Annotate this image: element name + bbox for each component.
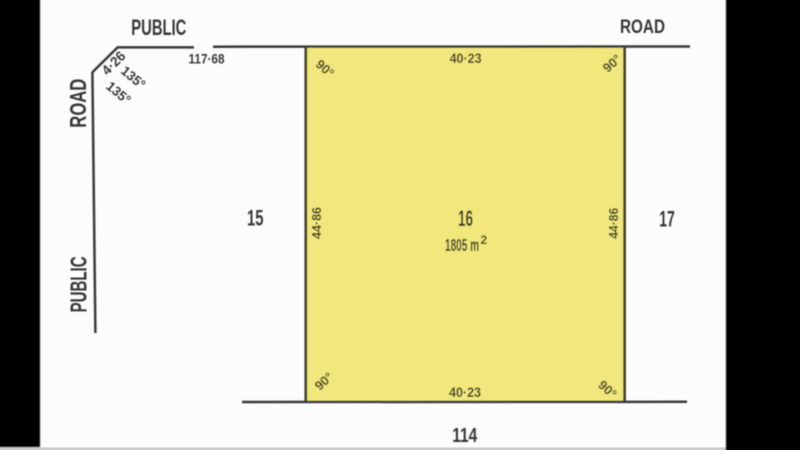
svg-text:44·86: 44·86 xyxy=(310,207,324,239)
svg-text:ROAD: ROAD xyxy=(65,79,91,128)
svg-text:2: 2 xyxy=(480,233,487,247)
svg-text:ROAD: ROAD xyxy=(620,16,665,38)
svg-text:PUBLIC: PUBLIC xyxy=(131,15,186,40)
svg-text:44·86: 44·86 xyxy=(607,208,621,239)
svg-text:PUBLIC: PUBLIC xyxy=(66,256,92,312)
svg-text:16: 16 xyxy=(458,206,473,231)
svg-text:15: 15 xyxy=(247,205,264,230)
svg-text:17: 17 xyxy=(659,207,675,232)
svg-text:1805 m: 1805 m xyxy=(445,235,479,255)
svg-text:40·23: 40·23 xyxy=(449,384,481,400)
svg-text:40·23: 40·23 xyxy=(450,50,482,66)
svg-text:114: 114 xyxy=(452,425,478,447)
svg-text:117·68: 117·68 xyxy=(189,50,225,66)
